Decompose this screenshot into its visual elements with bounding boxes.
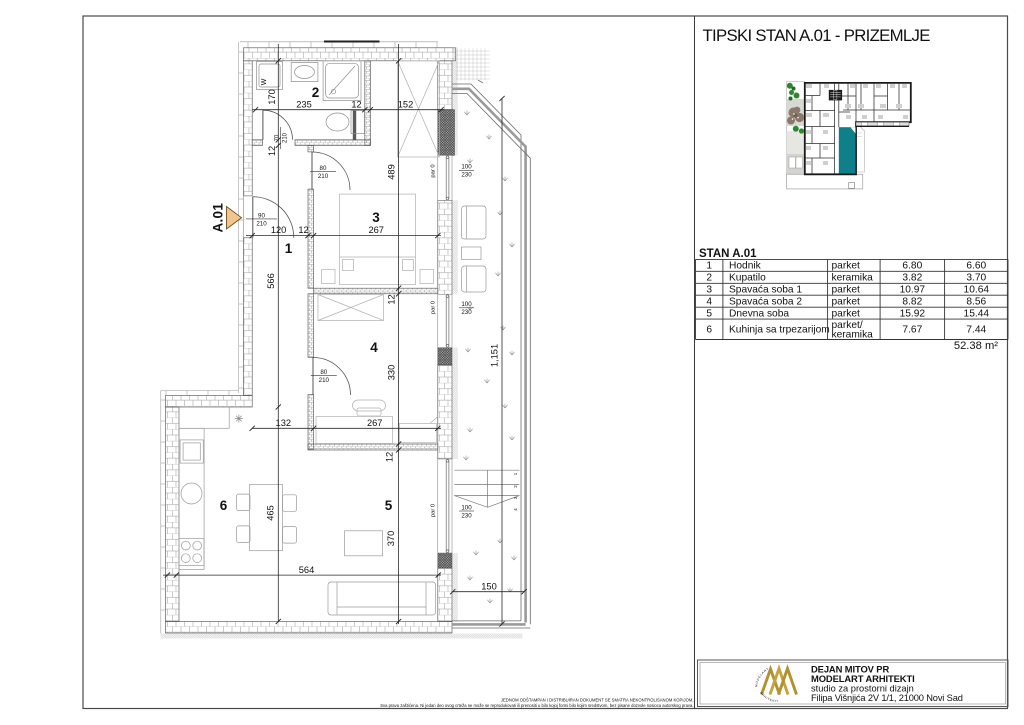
svg-text:80: 80 [320,165,327,172]
svg-text:267: 267 [367,418,383,428]
svg-text:12: 12 [386,294,396,304]
svg-text:230: 230 [461,172,472,179]
svg-text:7.44: 7.44 [966,325,986,336]
svg-text:15.44: 15.44 [964,309,990,320]
svg-text:par 0: par 0 [431,301,437,314]
svg-text:STAN A.01: STAN A.01 [699,248,757,260]
svg-text:1: 1 [706,261,712,272]
svg-text:210: 210 [319,377,330,384]
svg-text:52.38 m²: 52.38 m² [954,340,998,352]
svg-text:12: 12 [351,99,361,109]
svg-text:parket: parket [832,285,860,296]
svg-text:Spavaća soba 1: Spavaća soba 1 [729,285,802,296]
svg-text:par 0: par 0 [431,164,437,177]
svg-text:90: 90 [258,212,265,219]
svg-text:230: 230 [461,512,472,519]
svg-text:210: 210 [318,173,329,180]
svg-text:parket: parket [832,261,860,272]
svg-text:1,151: 1,151 [490,344,500,367]
svg-text:564: 564 [299,565,315,575]
svg-text:210: 210 [283,132,289,143]
svg-text:Sva prava zaštićena. Ni jedan: Sva prava zaštićena. Ni jedan deo ovog c… [380,703,693,708]
svg-text:par 0: par 0 [431,504,437,517]
svg-text:230: 230 [461,309,472,316]
svg-text:235: 235 [296,99,312,109]
svg-text:parket: parket [832,297,860,308]
svg-text:132: 132 [276,418,292,428]
svg-text:465: 465 [265,505,275,521]
svg-text:100: 100 [461,164,472,171]
svg-text:parket: parket [832,309,860,320]
svg-text:Filipa Višnjića 2V 1/1, 21000: Filipa Višnjića 2V 1/1, 21000 Novi Sad [811,693,963,703]
svg-text:JEDNOM ODŠTAMPAN I DISTRIBUIRA: JEDNOM ODŠTAMPAN I DISTRIBUIRAN DOKUMENT… [501,698,694,703]
svg-text:1: 1 [285,241,293,256]
svg-text:Kupatilo: Kupatilo [729,273,766,284]
svg-text:100: 100 [461,301,472,308]
svg-text:Kuhinja sa trpezarijom: Kuhinja sa trpezarijom [729,325,830,336]
svg-text:4: 4 [370,340,378,355]
svg-text:6: 6 [220,498,228,513]
svg-text:6.80: 6.80 [902,261,922,272]
svg-text:370: 370 [386,531,396,547]
svg-text:keramika: keramika [832,330,874,341]
svg-text:7.67: 7.67 [902,325,922,336]
svg-text:566: 566 [266,273,276,289]
svg-text:12: 12 [267,146,277,156]
svg-text:A.01: A.01 [211,203,226,233]
svg-text:studio za prostorni dizajn: studio za prostorni dizajn [811,684,914,694]
svg-text:10.64: 10.64 [964,285,990,296]
svg-text:keramika: keramika [832,273,874,284]
svg-text:489: 489 [386,164,396,180]
svg-text:6: 6 [706,325,712,336]
svg-text:2: 2 [706,273,712,284]
svg-text:W: W [261,78,268,85]
svg-text:15.92: 15.92 [900,309,926,320]
svg-text:3: 3 [706,285,712,296]
svg-text:150: 150 [481,581,497,591]
svg-text:8.56: 8.56 [966,297,986,308]
svg-text:5: 5 [706,309,712,320]
svg-text:10.97: 10.97 [900,285,926,296]
svg-text:5: 5 [385,498,393,513]
svg-text:Hodnik: Hodnik [729,261,762,272]
svg-text:12: 12 [384,452,394,462]
svg-text:2: 2 [312,85,320,100]
svg-text:TIPSKI STAN A.01 - PRIZEMLJE: TIPSKI STAN A.01 - PRIZEMLJE [703,26,931,45]
svg-text:170: 170 [267,89,277,105]
svg-text:8.82: 8.82 [902,297,922,308]
svg-text:3.70: 3.70 [966,273,986,284]
svg-text:152: 152 [398,99,414,109]
svg-text:210: 210 [256,220,267,227]
svg-text:Dnevna soba: Dnevna soba [729,309,789,320]
svg-text:6.60: 6.60 [966,261,986,272]
svg-text:267: 267 [368,225,384,235]
svg-text:330: 330 [386,365,396,381]
svg-text:4: 4 [706,297,712,308]
svg-text:100: 100 [461,504,472,511]
svg-text:12: 12 [298,225,308,235]
svg-text:3: 3 [372,210,380,225]
svg-text:Spavaća soba 2: Spavaća soba 2 [729,297,802,308]
svg-text:70: 70 [274,134,280,141]
svg-text:MODELART ARHITEKTI: MODELART ARHITEKTI [811,673,915,684]
svg-text:3.82: 3.82 [902,273,922,284]
svg-text:80: 80 [320,369,327,376]
svg-text:120: 120 [271,225,287,235]
